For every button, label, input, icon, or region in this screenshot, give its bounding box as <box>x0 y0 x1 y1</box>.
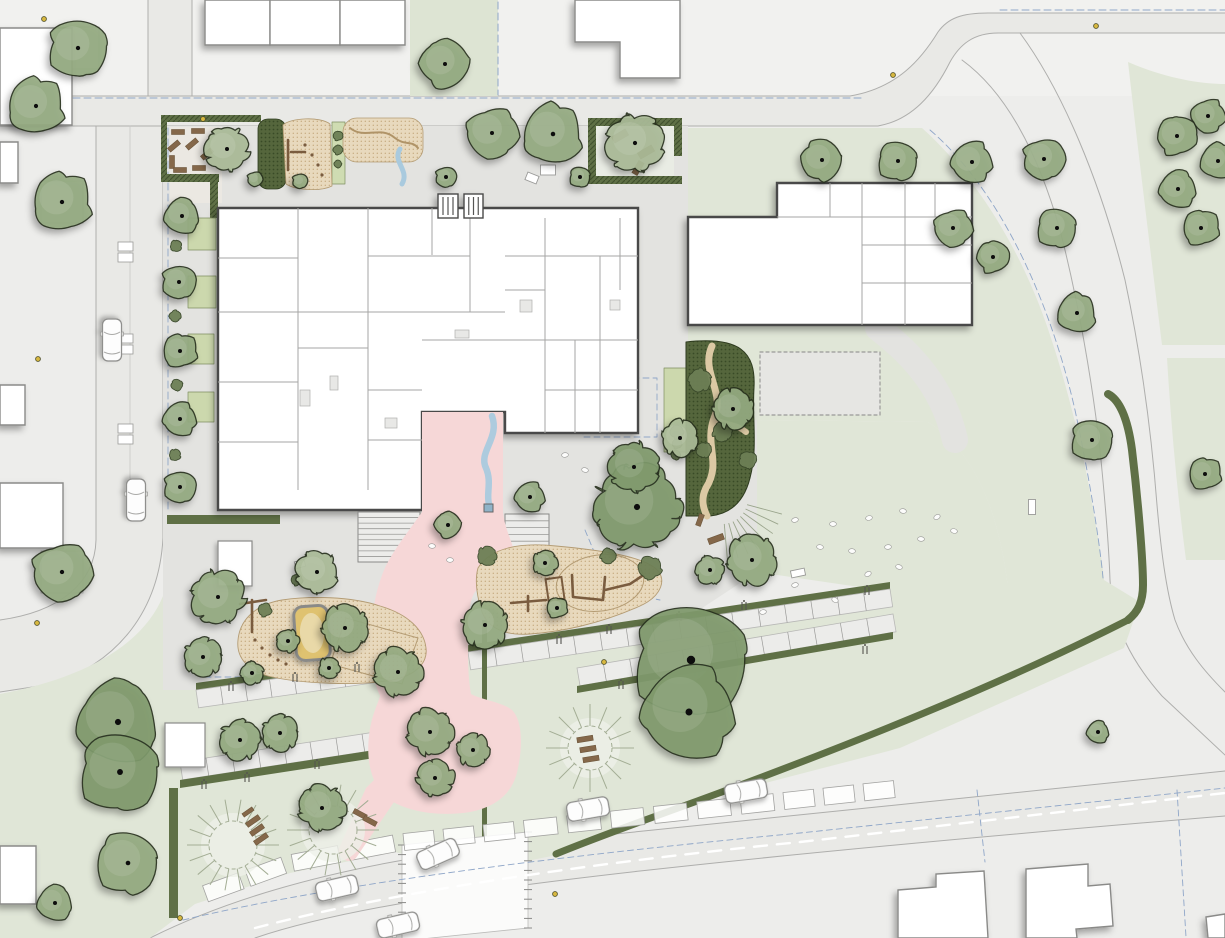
tree <box>1038 209 1076 247</box>
tree-highlight <box>549 600 561 612</box>
parking-bay <box>483 822 515 842</box>
bench <box>174 168 187 173</box>
tree-highlight <box>1076 425 1100 449</box>
tree-trunk-dot <box>1175 134 1179 138</box>
tree <box>82 735 158 810</box>
tree-highlight <box>956 147 980 171</box>
tree-highlight <box>438 169 450 181</box>
tree <box>1190 458 1221 489</box>
neighbor-building <box>0 846 36 904</box>
tree-highlight <box>699 560 716 577</box>
tree-trunk-dot <box>1055 226 1059 230</box>
fixture <box>610 300 620 310</box>
tree-highlight <box>294 175 303 184</box>
tree-highlight <box>1193 462 1212 481</box>
tree <box>50 21 107 76</box>
bicycle <box>866 585 868 587</box>
tree-highlight <box>168 475 187 494</box>
tree-trunk-dot <box>117 769 123 775</box>
boulder <box>561 452 568 457</box>
tree-highlight <box>249 173 258 182</box>
parking-bay <box>610 808 645 828</box>
tree-trunk-dot <box>60 570 64 574</box>
bicycle <box>620 679 622 681</box>
car-mirror <box>582 819 586 822</box>
tree-trunk-dot <box>951 226 955 230</box>
tree-trunk-dot <box>991 255 995 259</box>
stepping-stone <box>320 173 323 176</box>
garden-hedge <box>161 115 167 181</box>
bicycle <box>316 759 318 761</box>
tree-trunk-dot <box>678 436 682 440</box>
tree-highlight <box>613 122 646 155</box>
tree-highlight <box>41 890 62 911</box>
parking-bay <box>653 803 688 823</box>
tree-trunk-dot <box>396 670 400 674</box>
tree-trunk-dot <box>1042 157 1046 161</box>
tree-trunk-dot <box>327 666 331 670</box>
bicycle <box>246 772 248 774</box>
tree-highlight <box>426 46 455 75</box>
tree-trunk-dot <box>1096 730 1100 734</box>
neighbor-building <box>0 142 18 183</box>
tree-highlight <box>1089 724 1102 737</box>
shrub <box>696 443 711 458</box>
tree-trunk-dot <box>686 709 693 716</box>
site-plan <box>0 0 1225 938</box>
tree <box>879 142 917 180</box>
tree-trunk-dot <box>278 731 282 735</box>
boulder <box>848 548 855 553</box>
car <box>101 319 124 361</box>
tree-highlight <box>981 245 1000 264</box>
tree-highlight <box>225 725 248 748</box>
shrub <box>170 240 181 251</box>
bench <box>172 130 185 135</box>
street-lamp <box>1094 24 1099 29</box>
stepping-stone <box>310 153 313 156</box>
tree-trunk-dot <box>76 46 80 50</box>
stream-outlet <box>484 504 493 512</box>
tree <box>1184 210 1219 245</box>
fixture <box>385 418 397 428</box>
bicycle <box>203 779 205 781</box>
boulder <box>428 543 435 548</box>
tree <box>164 334 197 367</box>
shrub <box>333 131 343 141</box>
tree-highlight <box>615 449 644 478</box>
fixture <box>520 300 532 312</box>
stepping-stone <box>253 638 256 641</box>
tree-trunk-dot <box>1090 438 1094 442</box>
tree-highlight <box>1195 103 1215 123</box>
bench <box>170 156 175 169</box>
stepping-stone <box>268 653 271 656</box>
tree-trunk-dot <box>731 407 735 411</box>
tree-highlight <box>86 691 134 739</box>
tree-trunk-dot <box>970 160 974 164</box>
tree-highlight <box>167 338 187 358</box>
street-lamp <box>201 117 206 122</box>
tree-trunk-dot <box>543 561 547 565</box>
parking-bay <box>697 798 732 818</box>
tree-highlight <box>1163 175 1185 197</box>
bicycle <box>864 644 866 646</box>
stepping-stone <box>303 143 306 146</box>
tree-trunk-dot <box>632 465 636 469</box>
tree-trunk-dot <box>53 901 57 905</box>
tree-highlight <box>14 85 47 118</box>
tree-trunk-dot <box>551 132 555 136</box>
tree-highlight <box>438 515 453 530</box>
table <box>541 165 556 175</box>
boundary-hedge <box>167 515 280 524</box>
street-lamp <box>178 916 183 921</box>
tree-highlight <box>279 633 292 646</box>
fixture <box>455 330 469 338</box>
tree-highlight <box>666 425 687 446</box>
tree <box>292 174 307 188</box>
bicycle <box>356 662 358 664</box>
street-lamp <box>553 892 558 897</box>
tree-trunk-dot <box>708 568 712 572</box>
tree-highlight <box>472 114 502 144</box>
tree-highlight <box>104 840 140 876</box>
tree-trunk-dot <box>528 495 532 499</box>
utility-box <box>118 242 133 251</box>
play-sand <box>343 118 423 162</box>
tree-highlight <box>1162 121 1185 144</box>
shed <box>165 723 205 767</box>
boulder <box>884 544 891 549</box>
table <box>1029 500 1036 515</box>
car-mirror <box>736 780 740 783</box>
stepping-stone <box>316 163 319 166</box>
tree-highlight <box>89 743 135 789</box>
neighbor-building <box>340 0 405 45</box>
tree <box>35 171 92 229</box>
bench <box>193 166 206 171</box>
stepping-stone <box>276 658 279 661</box>
tree-highlight <box>243 665 256 678</box>
tree <box>162 266 196 298</box>
tree-highlight <box>188 643 210 665</box>
tree-trunk-dot <box>483 623 487 627</box>
tree-highlight <box>39 180 73 214</box>
fixture <box>330 376 338 390</box>
tree-highlight <box>266 720 287 741</box>
tree-highlight <box>1204 148 1225 169</box>
car <box>125 479 148 521</box>
boulder <box>830 522 837 527</box>
car-mirror <box>578 798 582 801</box>
neighbor-building <box>0 483 63 548</box>
tree-trunk-dot <box>286 639 290 643</box>
tree-highlight <box>1028 144 1052 168</box>
tree-highlight <box>167 406 187 426</box>
tree-trunk-dot <box>555 606 559 610</box>
tree-trunk-dot <box>250 671 254 675</box>
shrub <box>170 449 181 460</box>
tree-highlight <box>304 791 330 817</box>
tree-highlight <box>55 26 89 60</box>
tree-trunk-dot <box>178 417 182 421</box>
tree-highlight <box>461 738 480 757</box>
tree-trunk-dot <box>433 776 437 780</box>
tree-highlight <box>327 611 353 637</box>
tree-trunk-dot <box>490 131 494 135</box>
tree-trunk-dot <box>634 504 640 510</box>
tree-trunk-dot <box>471 748 475 752</box>
parking-bay <box>823 785 855 805</box>
neighbor-building <box>270 0 340 45</box>
tree-highlight <box>210 133 235 158</box>
parking-bay <box>783 789 815 809</box>
car-mirror <box>101 332 103 336</box>
garden-hedge <box>588 176 682 184</box>
utility-box <box>118 253 133 262</box>
tree-trunk-dot <box>820 158 824 162</box>
tree-highlight <box>572 169 584 181</box>
tree-highlight <box>467 608 493 634</box>
tree-highlight <box>166 269 186 289</box>
tree-trunk-dot <box>687 656 695 664</box>
tree <box>98 833 157 895</box>
tree-highlight <box>301 557 325 581</box>
tree-highlight <box>733 542 762 571</box>
tree-trunk-dot <box>633 141 637 145</box>
tree-highlight <box>653 677 708 732</box>
tree <box>547 598 567 618</box>
tree-trunk-dot <box>578 175 582 179</box>
tree-trunk-dot <box>60 200 64 204</box>
tree-highlight <box>883 146 906 169</box>
tree-highlight <box>321 660 333 672</box>
tree-trunk-dot <box>34 104 38 108</box>
tree-trunk-dot <box>201 655 205 659</box>
tree-highlight <box>1062 298 1085 321</box>
tree-trunk-dot <box>1203 472 1207 476</box>
tree-highlight <box>1042 213 1065 236</box>
utility-box <box>118 435 133 444</box>
neighbor-building <box>205 0 270 45</box>
tree <box>164 472 196 502</box>
tree-trunk-dot <box>1216 159 1220 163</box>
tree-highlight <box>806 145 830 169</box>
street-lamp <box>891 73 896 78</box>
stepping-stone <box>260 646 263 649</box>
site-plan-drawing <box>0 0 1225 938</box>
tree-highlight <box>380 655 408 683</box>
fixture <box>300 390 310 406</box>
street-lamp <box>36 357 41 362</box>
boundary-hedge <box>169 788 178 918</box>
tree <box>319 658 341 679</box>
tree-highlight <box>198 577 229 608</box>
north-stub-road <box>148 0 192 96</box>
car-mirror <box>125 492 127 496</box>
bicycle <box>294 672 296 674</box>
shrub <box>478 546 497 565</box>
bicycle <box>608 624 610 626</box>
bench <box>192 129 205 134</box>
tree <box>436 168 457 188</box>
tree-highlight <box>530 112 565 147</box>
tree-trunk-dot <box>444 175 448 179</box>
tree-trunk-dot <box>126 861 131 866</box>
bicycle <box>558 634 560 636</box>
tree-trunk-dot <box>177 280 181 284</box>
street-lamp <box>35 621 40 626</box>
tree-trunk-dot <box>1199 226 1203 230</box>
tree <box>247 172 263 187</box>
tree-trunk-dot <box>225 147 229 151</box>
tree-highlight <box>39 550 73 584</box>
tree-highlight <box>421 765 442 786</box>
terrace <box>760 352 880 415</box>
tree-trunk-dot <box>1176 187 1180 191</box>
tree-highlight <box>938 214 960 236</box>
tree-trunk-dot <box>180 214 184 218</box>
stepping-stone <box>284 662 287 665</box>
street-lamp <box>42 17 47 22</box>
parking-bay <box>523 817 558 837</box>
tree <box>10 76 65 132</box>
boulder <box>917 537 924 542</box>
tree-highlight <box>412 715 438 741</box>
tree-trunk-dot <box>115 719 121 725</box>
tree-trunk-dot <box>1206 114 1210 118</box>
neighbor-building <box>0 385 25 425</box>
bicycle <box>230 681 232 683</box>
tree-trunk-dot <box>343 626 347 630</box>
car-body <box>103 319 122 361</box>
boulder <box>447 558 454 563</box>
garden-hedge <box>674 118 682 156</box>
bicycle <box>743 600 745 602</box>
neighbor-building <box>1206 914 1225 938</box>
tree-trunk-dot <box>896 159 900 163</box>
tree-highlight <box>536 554 550 568</box>
tree-trunk-dot <box>428 730 432 734</box>
tree-trunk-dot <box>446 523 450 527</box>
tree-trunk-dot <box>320 806 324 810</box>
tree-trunk-dot <box>238 738 242 742</box>
tree-highlight <box>718 394 741 417</box>
car-body <box>127 479 146 521</box>
utility-box <box>118 424 133 433</box>
tree-trunk-dot <box>178 485 182 489</box>
car-mirror <box>146 492 148 496</box>
parking-bay <box>863 781 895 801</box>
tree-trunk-dot <box>178 349 182 353</box>
tree-highlight <box>518 486 536 504</box>
tree <box>570 167 590 187</box>
tree <box>1072 421 1112 460</box>
street-lamp <box>602 660 607 665</box>
tree-trunk-dot <box>750 558 754 562</box>
garden-hedge <box>161 115 261 122</box>
tree-trunk-dot <box>1075 311 1079 315</box>
car-mirror <box>740 801 744 804</box>
tree-highlight <box>1187 215 1208 236</box>
car-mirror <box>122 332 124 336</box>
tree-highlight <box>168 203 189 224</box>
tree-trunk-dot <box>315 570 319 574</box>
tree-trunk-dot <box>443 62 447 66</box>
tree-trunk-dot <box>216 595 220 599</box>
